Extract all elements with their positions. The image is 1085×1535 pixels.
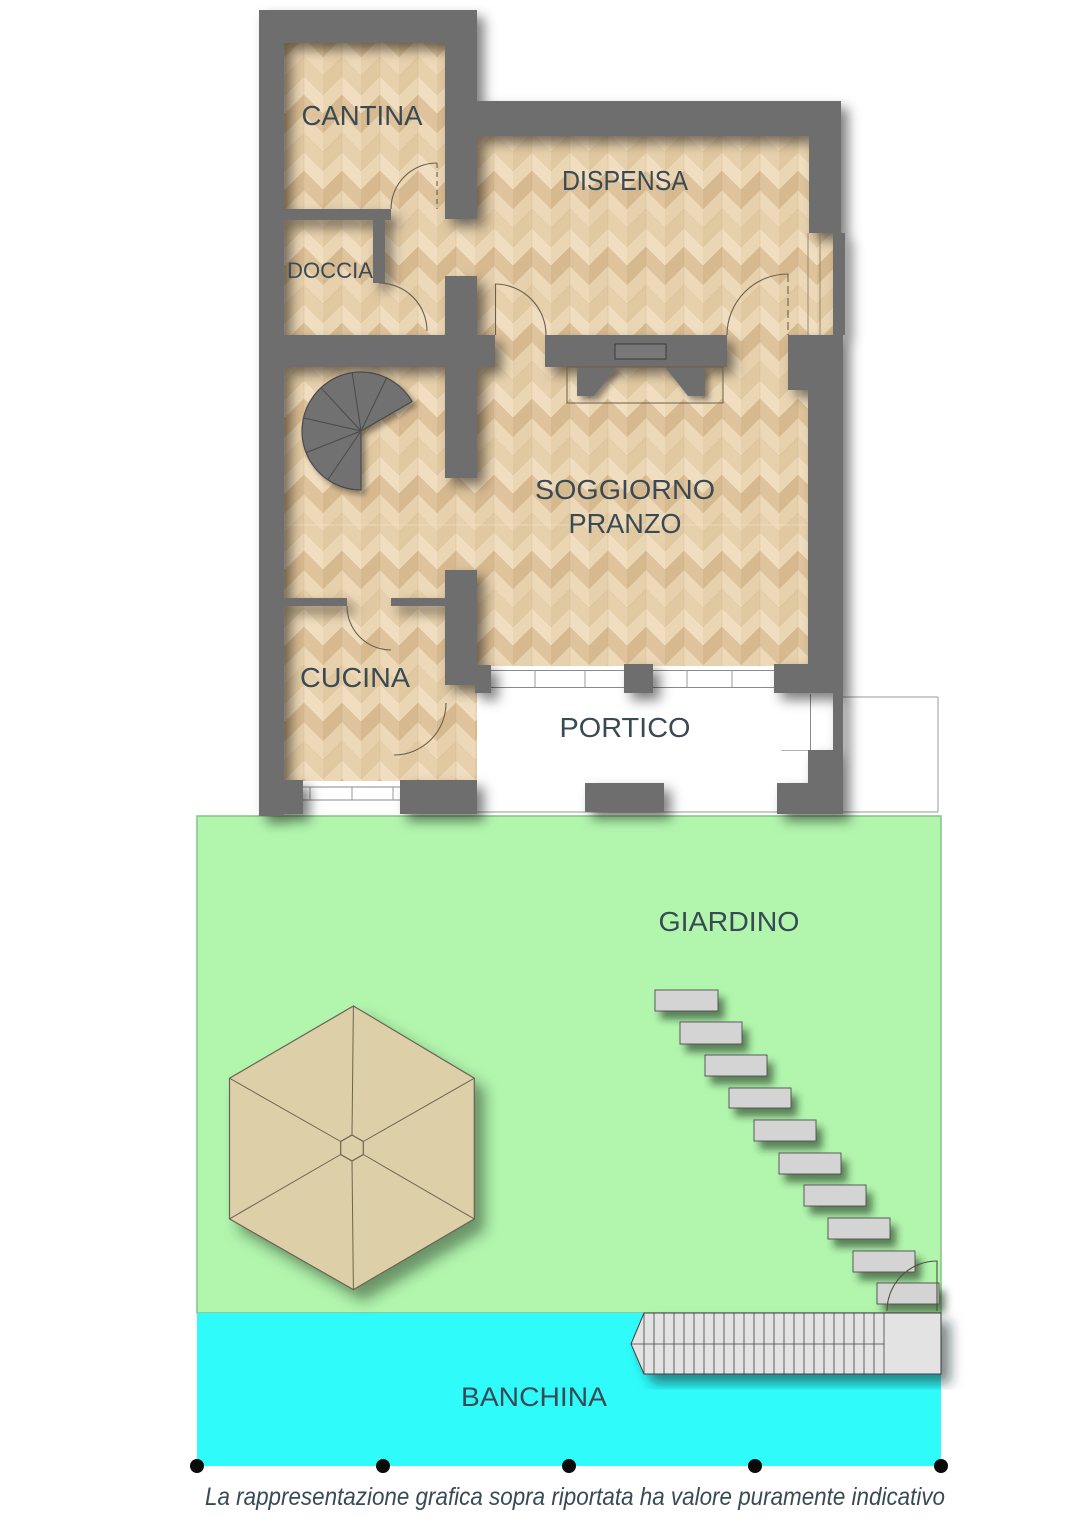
- svg-text:DISPENSA: DISPENSA: [562, 165, 688, 196]
- svg-text:SOGGIORNO: SOGGIORNO: [535, 474, 715, 505]
- svg-text:PORTICO: PORTICO: [560, 712, 691, 743]
- svg-text:CUCINA: CUCINA: [300, 662, 410, 693]
- svg-text:PRANZO: PRANZO: [569, 508, 682, 539]
- svg-text:DOCCIA: DOCCIA: [287, 258, 373, 283]
- svg-text:La rappresentazione grafica so: La rappresentazione grafica sopra riport…: [205, 1483, 945, 1511]
- svg-text:BANCHINA: BANCHINA: [461, 1382, 607, 1412]
- svg-text:CANTINA: CANTINA: [302, 100, 423, 131]
- svg-text:GIARDINO: GIARDINO: [659, 906, 800, 937]
